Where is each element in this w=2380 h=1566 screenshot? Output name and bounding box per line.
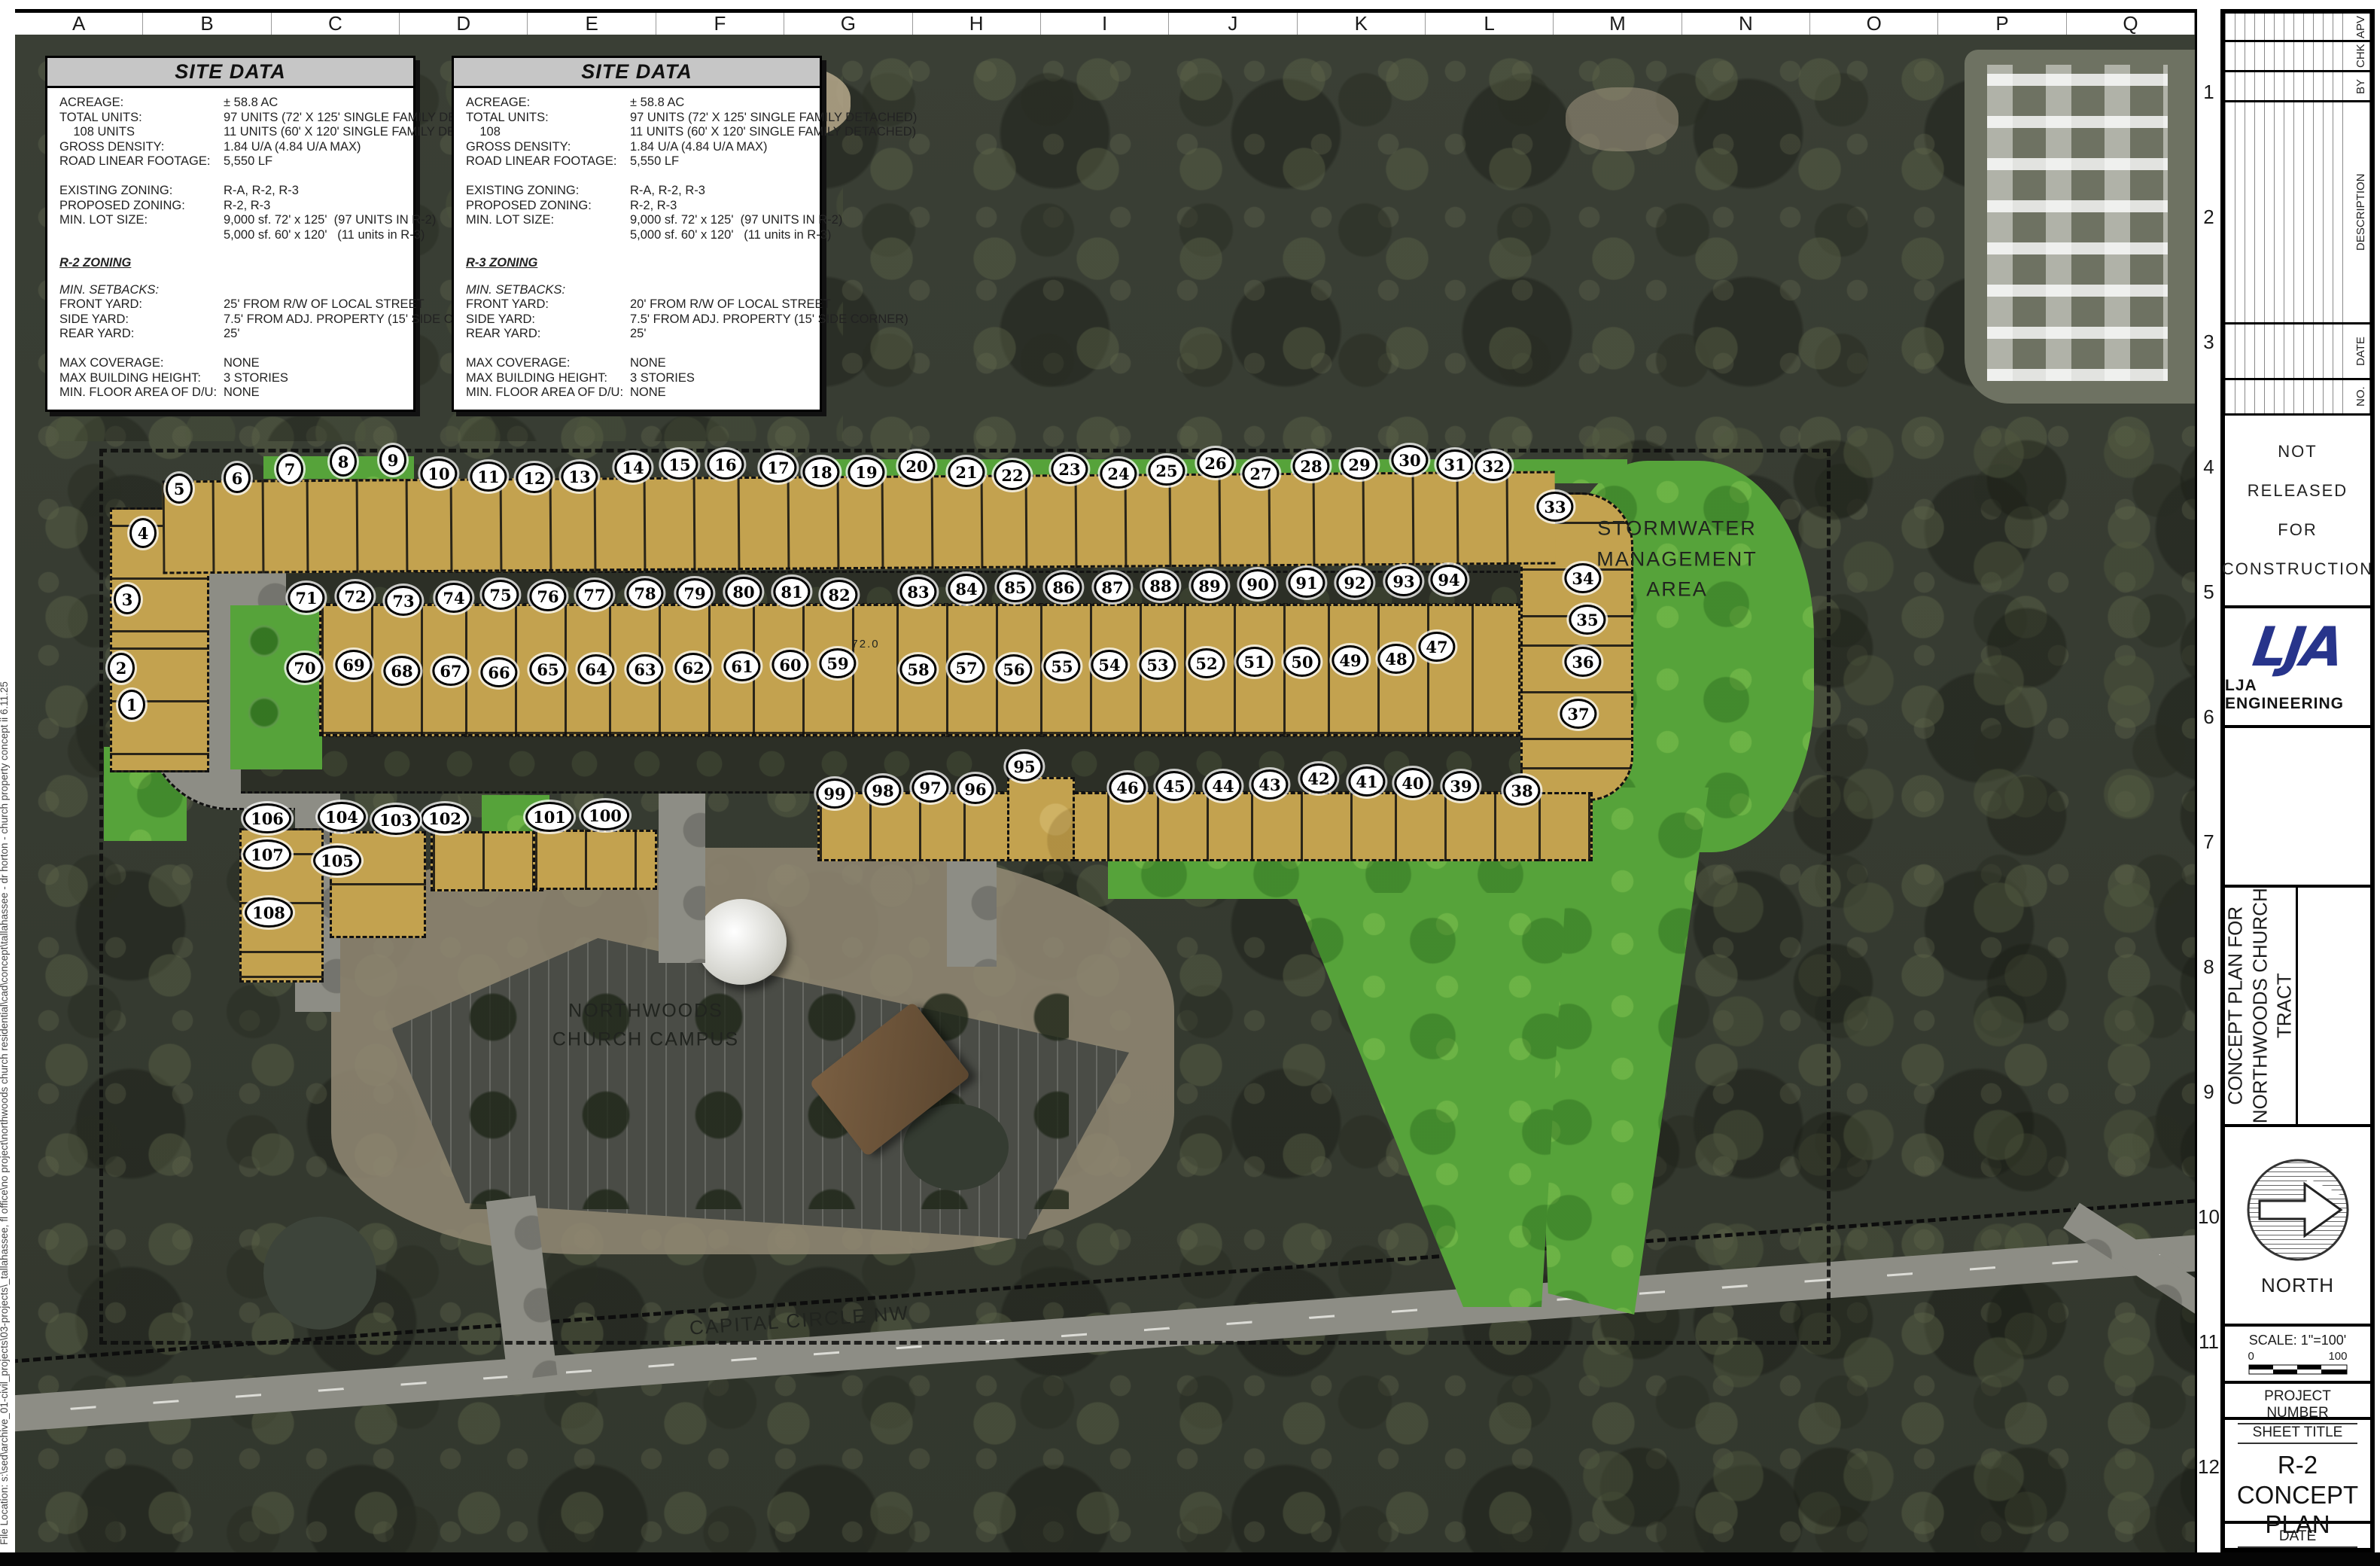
lot-badge-9: 9 (379, 445, 406, 475)
lot-badge-61: 61 (723, 651, 760, 681)
lot-badge-86: 86 (1045, 572, 1082, 602)
lot-badge-6: 6 (224, 463, 251, 493)
revision-band-apv: APV (2225, 14, 2370, 42)
site-data-row: FRONT YARD:20' FROM R/W OF LOCAL STREET (466, 297, 809, 312)
north-arrow-box: NORTH (2225, 1127, 2370, 1327)
site-data-label: MIN. LOT SIZE: (466, 213, 630, 228)
site-data-value: 97 UNITS (72' X 125' SINGLE FAMILY DETAC… (630, 111, 917, 126)
site-data-value: NONE (630, 356, 666, 371)
spare-box (2225, 728, 2370, 888)
lot-badge-94: 94 (1430, 565, 1467, 595)
lot-badge-80: 80 (725, 577, 762, 607)
drawing-sheet: 1234567891011121314151617181920212223242… (0, 0, 2380, 1566)
lot-badge-92: 92 (1336, 568, 1373, 598)
grid-row-12: 12 (2197, 1455, 2220, 1479)
site-data-value: 5,000 sf. 60' x 120' (11 units in R-3) (630, 228, 831, 243)
site-data-label (59, 228, 224, 243)
grid-row-7: 7 (2197, 830, 2220, 854)
site-data-row: MIN. FLOOR AREA OF D/U:NONE (59, 385, 403, 401)
site-data-value: NONE (630, 385, 666, 401)
site-data-label: SIDE YARD: (466, 312, 630, 328)
site-data-row: MAX COVERAGE:NONE (59, 356, 403, 371)
lot-badge-26: 26 (1197, 448, 1234, 478)
site-data-row: SIDE YARD:7.5' FROM ADJ. PROPERTY (15' S… (59, 312, 403, 328)
not-released-stamp: NOTRELEASEDFORCONSTRUCTION (2225, 416, 2370, 608)
lot-badge-79: 79 (676, 578, 713, 608)
grid-row-2: 2 (2197, 206, 2220, 229)
grid-column-K: K (1298, 13, 1426, 35)
lot-badge-3: 3 (114, 584, 141, 614)
lot-badge-76: 76 (529, 581, 566, 611)
lot-badge-65: 65 (529, 654, 566, 684)
lot-badge-5: 5 (166, 474, 193, 504)
site-data-row (59, 342, 403, 357)
lot-badge-4: 4 (129, 518, 157, 548)
lot-badge-93: 93 (1385, 566, 1422, 596)
lot-badge-44: 44 (1204, 771, 1241, 801)
lot-badge-90: 90 (1239, 569, 1276, 599)
site-data-box-r2: SITE DATAACREAGE:± 58.8 ACTOTAL UNITS:97… (45, 56, 415, 412)
lot-badge-1: 1 (118, 690, 145, 720)
grid-column-G: G (784, 13, 912, 35)
site-data-value: ± 58.8 AC (630, 96, 684, 111)
site-data-row: MIN. LOT SIZE:9,000 sf. 72' x 125' (97 U… (466, 213, 809, 228)
site-data-label (466, 228, 630, 243)
site-data-label: SIDE YARD: (59, 312, 224, 328)
lot-badge-106: 106 (243, 803, 291, 833)
neighborhood-area (1965, 50, 2195, 404)
site-data-label: MIN. FLOOR AREA OF D/U: (466, 385, 630, 401)
site-data-row (466, 169, 809, 184)
site-data-label: GROSS DENSITY: (59, 140, 224, 155)
site-data-label: REAR YARD: (59, 327, 224, 342)
lot-badge-55: 55 (1043, 651, 1080, 681)
lot-badge-56: 56 (995, 654, 1032, 684)
lot-badge-7: 7 (276, 454, 303, 484)
scale-box: SCALE: 1"=100' 0 100 (2225, 1327, 2370, 1384)
site-data-row: SIDE YARD:7.5' FROM ADJ. PROPERTY (15' S… (466, 312, 809, 328)
revision-table: APVCHKBYDESCRIPTIONDATENO. (2225, 14, 2370, 416)
site-data-row: PROPOSED ZONING:R-2, R-3 (59, 199, 403, 214)
lot-badge-12: 12 (516, 463, 552, 493)
lot-badge-54: 54 (1091, 650, 1128, 680)
grid-column-D: D (400, 13, 528, 35)
grid-row-9: 9 (2197, 1080, 2220, 1104)
site-data-label: MAX COVERAGE: (466, 356, 630, 371)
project-title-line: CONCEPT PLAN FOR (2223, 888, 2248, 1123)
lot-badge-43: 43 (1251, 769, 1288, 800)
lot-badge-18: 18 (802, 457, 839, 487)
lot-badge-81: 81 (773, 577, 810, 607)
site-data-row: 10811 UNITS (60' X 120' SINGLE FAMILY DE… (466, 125, 809, 140)
site-data-value: 9,000 sf. 72' x 125' (97 UNITS IN R-2) (630, 213, 842, 228)
grid-row-6: 6 (2197, 705, 2220, 729)
grid-column-N: N (1682, 13, 1810, 35)
lot-badge-74: 74 (435, 583, 472, 613)
lot-badge-95: 95 (1006, 751, 1042, 781)
site-data-row: 108 UNITS11 UNITS (60' X 120' SINGLE FAM… (59, 125, 403, 140)
lja-logo-icon: LJA (2250, 620, 2345, 674)
grid-column-Q: Q (2067, 13, 2195, 35)
lot-badge-68: 68 (383, 656, 420, 686)
site-data-row: 5,000 sf. 60' x 120' (11 units in R-3) (59, 228, 403, 243)
lot-badge-82: 82 (820, 580, 857, 610)
lot-badge-25: 25 (1148, 455, 1185, 486)
lot-badge-33: 33 (1536, 492, 1573, 522)
lot-badge-67: 67 (432, 656, 469, 686)
site-data-row: TOTAL UNITS:97 UNITS (72' X 125' SINGLE … (466, 111, 809, 126)
lot-badge-20: 20 (898, 451, 935, 481)
site-data-value: 25' (224, 327, 240, 342)
lot-badge-96: 96 (957, 774, 994, 804)
revision-band-date: DATE (2225, 324, 2370, 380)
site-data-label: 108 UNITS (59, 125, 224, 140)
lot-badge-75: 75 (482, 580, 519, 610)
logo-box: LJA LJA ENGINEERING (2225, 608, 2370, 729)
site-data-label: ROAD LINEAR FOOTAGE: (466, 154, 630, 169)
lot-badge-40: 40 (1394, 768, 1431, 798)
site-data-value: 7.5' FROM ADJ. PROPERTY (15' SIDE CORNER… (630, 312, 908, 328)
site-data-value: 3 STORIES (224, 371, 288, 386)
site-data-row: ACREAGE:± 58.8 AC (466, 96, 809, 111)
site-data-value: ± 58.8 AC (224, 96, 278, 111)
lot-badge-39: 39 (1442, 771, 1479, 801)
site-data-label (466, 169, 630, 184)
lot-badge-41: 41 (1348, 766, 1385, 797)
grid-column-H: H (913, 13, 1041, 35)
site-data-label: 108 (466, 125, 630, 140)
site-data-row: GROSS DENSITY:1.84 U/A (4.84 U/A MAX) (59, 140, 403, 155)
lot-badge-19: 19 (848, 457, 884, 487)
site-data-row: MIN. FLOOR AREA OF D/U:NONE (466, 385, 809, 401)
project-number-label: PROJECT NUMBER (2238, 1388, 2357, 1424)
site-data-label: MAX BUILDING HEIGHT: (466, 371, 630, 386)
sheet-title-label: SHEET TITLE (2238, 1424, 2357, 1444)
site-data-label: REAR YARD: (466, 327, 630, 342)
grid-column-E: E (528, 13, 656, 35)
lot-badge-8: 8 (330, 446, 357, 477)
site-data-row: EXISTING ZONING:R-A, R-2, R-3 (59, 184, 403, 199)
dimension-label: 72.0 (851, 636, 879, 654)
site-data-label: ROAD LINEAR FOOTAGE: (59, 154, 224, 169)
lot-badge-48: 48 (1377, 644, 1414, 674)
lot-badge-57: 57 (948, 653, 985, 683)
grid-row-5: 5 (2197, 580, 2220, 604)
grid-row-1: 1 (2197, 81, 2220, 104)
site-data-label: GROSS DENSITY: (466, 140, 630, 155)
site-data-value: R-2, R-3 (630, 199, 677, 214)
date-box: DATE (2225, 1524, 2370, 1548)
site-data-row: ACREAGE:± 58.8 AC (59, 96, 403, 111)
lot-badge-22: 22 (994, 460, 1030, 490)
lot-badge-99: 99 (816, 778, 853, 809)
site-data-box-r3: SITE DATAACREAGE:± 58.8 ACTOTAL UNITS:97… (452, 56, 822, 412)
scale-tick-end: 100 (2328, 1350, 2347, 1363)
grid-column-L: L (1426, 13, 1554, 35)
lot-badge-98: 98 (864, 775, 901, 806)
zoning-heading: R-2 ZONING (59, 256, 403, 271)
lot-badge-21: 21 (948, 457, 985, 487)
lot-badge-101: 101 (525, 802, 574, 832)
lot-badge-24: 24 (1100, 459, 1137, 489)
lot-badge-72: 72 (336, 581, 373, 611)
site-data-row (59, 169, 403, 184)
site-data-label: FRONT YARD: (466, 297, 630, 312)
project-number-box: PROJECT NUMBER (2225, 1384, 2370, 1420)
lot-badge-16: 16 (707, 449, 744, 480)
project-title-text: CONCEPT PLAN FORNORTHWOODS CHURCHTRACT (2223, 888, 2297, 1123)
grid-column-F: F (656, 13, 784, 35)
site-data-value: 25' FROM R/W OF LOCAL STREET (224, 297, 425, 312)
lot-badge-64: 64 (577, 654, 614, 684)
site-data-label: PROPOSED ZONING: (59, 199, 224, 214)
lot-badge-52: 52 (1188, 648, 1225, 678)
lot-badge-47: 47 (1418, 632, 1455, 662)
revision-band-no: NO. (2225, 380, 2370, 416)
lot-badge-102: 102 (421, 803, 469, 833)
site-data-label: FRONT YARD: (59, 297, 224, 312)
lot-badge-38: 38 (1503, 775, 1540, 806)
site-data-value: 9,000 sf. 72' x 125' (97 UNITS IN R-2) (224, 213, 436, 228)
lot-badge-46: 46 (1109, 772, 1146, 803)
lot-badge-60: 60 (772, 650, 808, 680)
site-data-row: GROSS DENSITY:1.84 U/A (4.84 U/A MAX) (466, 140, 809, 155)
site-data-row: PROPOSED ZONING:R-2, R-3 (466, 199, 809, 214)
lot-badge-17: 17 (759, 452, 796, 483)
north-arrow-icon (2242, 1153, 2354, 1266)
site-data-label (59, 169, 224, 184)
lot-badge-53: 53 (1139, 650, 1176, 680)
lot-badge-77: 77 (576, 580, 613, 610)
grid-row-10: 10 (2197, 1205, 2220, 1229)
site-data-label: MIN. FLOOR AREA OF D/U: (59, 385, 224, 401)
lot-badge-36: 36 (1564, 647, 1601, 677)
lot-badge-84: 84 (948, 574, 985, 604)
lot-badge-78: 78 (626, 578, 663, 608)
lot-badge-100: 100 (581, 800, 629, 830)
grid-column-M: M (1554, 13, 1682, 35)
lot-badge-15: 15 (661, 449, 698, 480)
site-data-label: TOTAL UNITS: (59, 111, 224, 126)
not-released-line: CONSTRUCTION (2222, 559, 2373, 579)
site-data-value: 1.84 U/A (4.84 U/A MAX) (630, 140, 768, 155)
site-data-label: TOTAL UNITS: (466, 111, 630, 126)
site-data-row: REAR YARD:25' (466, 327, 809, 342)
not-released-line: NOT (2278, 442, 2317, 462)
project-title-line: NORTHWOODS CHURCH (2248, 888, 2273, 1123)
lot-badge-42: 42 (1300, 763, 1337, 794)
lot-badge-27: 27 (1242, 459, 1279, 489)
lot-badge-30: 30 (1391, 445, 1428, 475)
grid-column-B: B (143, 13, 271, 35)
grid-row-strip: 123456789101112 (2195, 9, 2220, 1552)
site-data-row: ROAD LINEAR FOOTAGE:5,550 LF (59, 154, 403, 169)
lot-badge-87: 87 (1094, 572, 1131, 602)
bottom-black-strip (0, 1552, 2380, 1566)
site-data-row: MAX BUILDING HEIGHT:3 STORIES (466, 371, 809, 386)
site-data-label: MAX COVERAGE: (59, 356, 224, 371)
site-data-body: ACREAGE:± 58.8 ACTOTAL UNITS:97 UNITS (7… (454, 88, 820, 410)
lot-badge-29: 29 (1341, 449, 1377, 480)
lot-badge-83: 83 (899, 577, 936, 607)
site-data-value: NONE (224, 356, 260, 371)
lot-badge-10: 10 (420, 459, 457, 489)
lot-badge-103: 103 (372, 805, 420, 835)
site-data-row: TOTAL UNITS:97 UNITS (72' X 125' SINGLE … (59, 111, 403, 126)
lot-badge-70: 70 (286, 653, 323, 683)
site-data-row: MIN. LOT SIZE:9,000 sf. 72' x 125' (97 U… (59, 213, 403, 228)
lot-badge-45: 45 (1155, 771, 1192, 801)
site-data-label (466, 342, 630, 357)
logo-company-name: LJA ENGINEERING (2225, 677, 2370, 713)
site-data-value: 20' FROM R/W OF LOCAL STREET (630, 297, 831, 312)
lot-badge-97: 97 (912, 772, 948, 803)
plan-label-1: NORTHWOODS CHURCH CAMPUS (552, 998, 739, 1054)
site-data-value: 5,000 sf. 60' x 120' (11 units in R-3) (224, 228, 425, 243)
revision-label: BY (2352, 72, 2370, 100)
site-data-row: MAX BUILDING HEIGHT:3 STORIES (59, 371, 403, 386)
grid-column-strip: ABCDEFGHIJKLMNOPQ (15, 9, 2195, 35)
site-data-value: 25' (630, 327, 647, 342)
site-data-value: NONE (224, 385, 260, 401)
title-block: APVCHKBYDESCRIPTIONDATENO. NOTRELEASEDFO… (2220, 9, 2375, 1552)
lot-badge-107: 107 (243, 839, 291, 870)
scale-bar (2248, 1364, 2348, 1375)
lot-badge-14: 14 (614, 452, 651, 483)
scale-tick-start: 0 (2248, 1350, 2254, 1363)
site-data-row: ROAD LINEAR FOOTAGE:5,550 LF (466, 154, 809, 169)
grid-column-J: J (1169, 13, 1297, 35)
lot-badge-32: 32 (1475, 451, 1511, 481)
grid-column-C: C (272, 13, 400, 35)
aerial-plan-canvas: 1234567891011121314151617181920212223242… (15, 35, 2195, 1552)
date-label: DATE (2238, 1528, 2357, 1548)
site-data-value: 3 STORIES (630, 371, 695, 386)
lot-badge-71: 71 (288, 583, 324, 613)
setbacks-heading: MIN. SETBACKS: (466, 283, 809, 298)
lot-badge-2: 2 (108, 653, 135, 683)
site-data-label: ACREAGE: (59, 96, 224, 111)
lot-badge-108: 108 (245, 897, 293, 928)
lot-badge-66: 66 (480, 657, 517, 687)
grid-row-3: 3 (2197, 331, 2220, 354)
lot-badge-50: 50 (1283, 647, 1320, 677)
site-data-label (59, 342, 224, 357)
revision-label: APV (2352, 14, 2370, 40)
project-title-line: TRACT (2272, 888, 2297, 1123)
site-data-label: EXISTING ZONING: (59, 184, 224, 199)
lot-badge-34: 34 (1564, 563, 1601, 593)
lot-badge-11: 11 (470, 462, 507, 492)
lot-badge-23: 23 (1051, 454, 1088, 484)
zoning-heading: R-3 ZONING (466, 256, 809, 271)
grid-column-O: O (1810, 13, 1938, 35)
grid-column-I: I (1041, 13, 1169, 35)
site-data-value: 1.84 U/A (4.84 U/A MAX) (224, 140, 361, 155)
revision-band-description: DESCRIPTION (2225, 102, 2370, 324)
lot-badge-69: 69 (335, 650, 372, 680)
lot-badge-13: 13 (561, 462, 598, 492)
site-data-label: ACREAGE: (466, 96, 630, 111)
file-location-text: File Location: s:\sed\archive_01-civil_p… (0, 641, 10, 1545)
site-data-value: R-2, R-3 (224, 199, 270, 214)
grid-column-P: P (1938, 13, 2066, 35)
revision-label: DESCRIPTION (2352, 102, 2370, 322)
site-data-label: PROPOSED ZONING: (466, 199, 630, 214)
lot-badge-51: 51 (1236, 647, 1273, 677)
revision-label: DATE (2352, 324, 2370, 378)
lot-badge-58: 58 (899, 654, 936, 684)
lot-badge-62: 62 (674, 653, 711, 683)
site-data-row: 5,000 sf. 60' x 120' (11 units in R-3) (466, 228, 809, 243)
lot-badge-35: 35 (1569, 605, 1605, 635)
lot-badge-91: 91 (1288, 568, 1325, 598)
site-data-row: MAX COVERAGE:NONE (466, 356, 809, 371)
revision-label: NO. (2352, 380, 2370, 413)
revision-label: CHK (2352, 42, 2370, 70)
setbacks-heading: MIN. SETBACKS: (59, 283, 403, 298)
site-data-title: SITE DATA (47, 58, 413, 88)
lot-badge-89: 89 (1191, 571, 1228, 601)
lot-badge-104: 104 (318, 802, 366, 832)
grid-row-4: 4 (2197, 455, 2220, 479)
site-data-row: EXISTING ZONING:R-A, R-2, R-3 (466, 184, 809, 199)
grid-row-11: 11 (2197, 1330, 2220, 1354)
site-data-row: REAR YARD:25' (59, 327, 403, 342)
scale-label: SCALE: 1"=100' (2249, 1333, 2346, 1348)
lot-badge-28: 28 (1292, 451, 1329, 481)
site-data-value: 5,550 LF (630, 154, 679, 169)
lot-badge-31: 31 (1436, 449, 1473, 480)
grid-row-8: 8 (2197, 955, 2220, 979)
site-data-title: SITE DATA (454, 58, 820, 88)
lot-badge-85: 85 (997, 572, 1033, 602)
revision-band-by: BY (2225, 72, 2370, 102)
lot-badge-63: 63 (626, 654, 663, 684)
clearing (1566, 87, 1678, 151)
site-data-row (466, 342, 809, 357)
site-data-body: ACREAGE:± 58.8 ACTOTAL UNITS:97 UNITS (7… (47, 88, 413, 410)
site-data-value: R-A, R-2, R-3 (224, 184, 299, 199)
site-data-value: 11 UNITS (60' X 120' SINGLE FAMILY DETAC… (630, 125, 916, 140)
north-label: NORTH (2261, 1274, 2334, 1297)
plan-label-0: STORMWATER MANAGEMENT AREA (1596, 513, 1758, 605)
site-data-value: R-A, R-2, R-3 (630, 184, 705, 199)
not-released-line: RELEASED (2248, 481, 2348, 501)
grid-column-A: A (15, 13, 143, 35)
site-data-value: 5,550 LF (224, 154, 272, 169)
lot-badge-49: 49 (1332, 645, 1368, 675)
lot-badge-37: 37 (1560, 699, 1596, 729)
sheet-title-box: SHEET TITLE R-2 CONCEPT PLAN (2225, 1420, 2370, 1524)
site-data-label: MIN. LOT SIZE: (59, 213, 224, 228)
site-data-label: MAX BUILDING HEIGHT: (59, 371, 224, 386)
lot-badge-59: 59 (819, 648, 856, 678)
lot-badge-105: 105 (313, 845, 361, 876)
lot-badge-88: 88 (1142, 571, 1179, 601)
lot-badge-73: 73 (385, 586, 422, 616)
project-title-box: CONCEPT PLAN FORNORTHWOODS CHURCHTRACT (2225, 888, 2370, 1127)
site-data-label: EXISTING ZONING: (466, 184, 630, 199)
not-released-line: FOR (2278, 520, 2317, 540)
site-data-row: FRONT YARD:25' FROM R/W OF LOCAL STREET (59, 297, 403, 312)
revision-band-chk: CHK (2225, 42, 2370, 72)
